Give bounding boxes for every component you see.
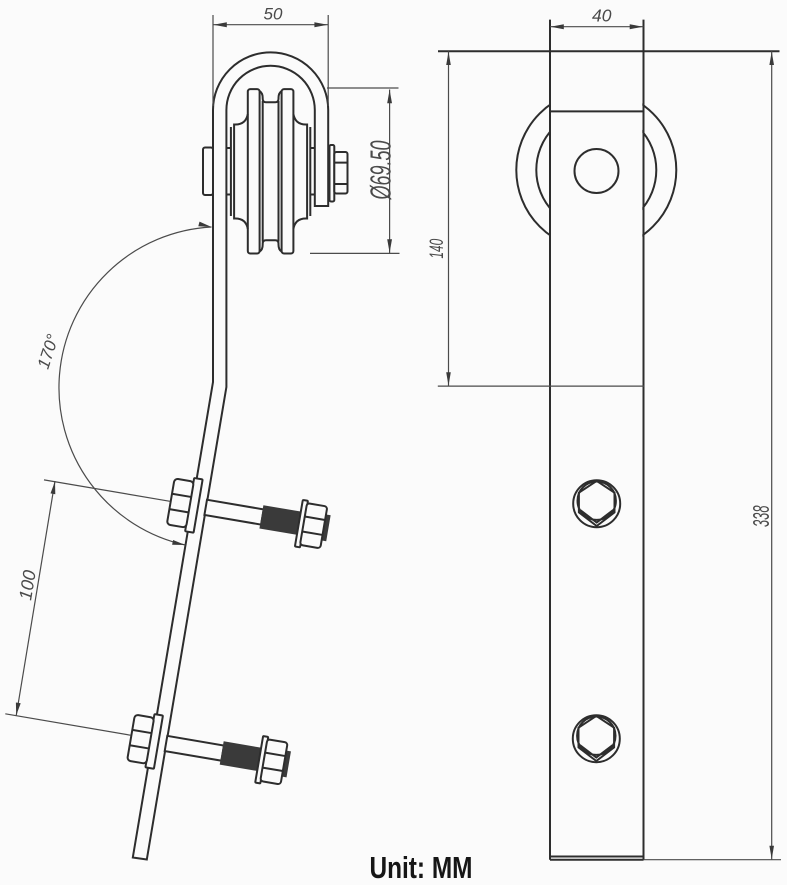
svg-text:50: 50: [264, 5, 283, 24]
svg-text:140: 140: [427, 239, 447, 259]
svg-text:338: 338: [748, 505, 774, 527]
svg-text:Ø69.50: Ø69.50: [365, 140, 397, 200]
svg-text:40: 40: [592, 6, 612, 26]
svg-text:Unit: MM: Unit: MM: [370, 850, 473, 885]
